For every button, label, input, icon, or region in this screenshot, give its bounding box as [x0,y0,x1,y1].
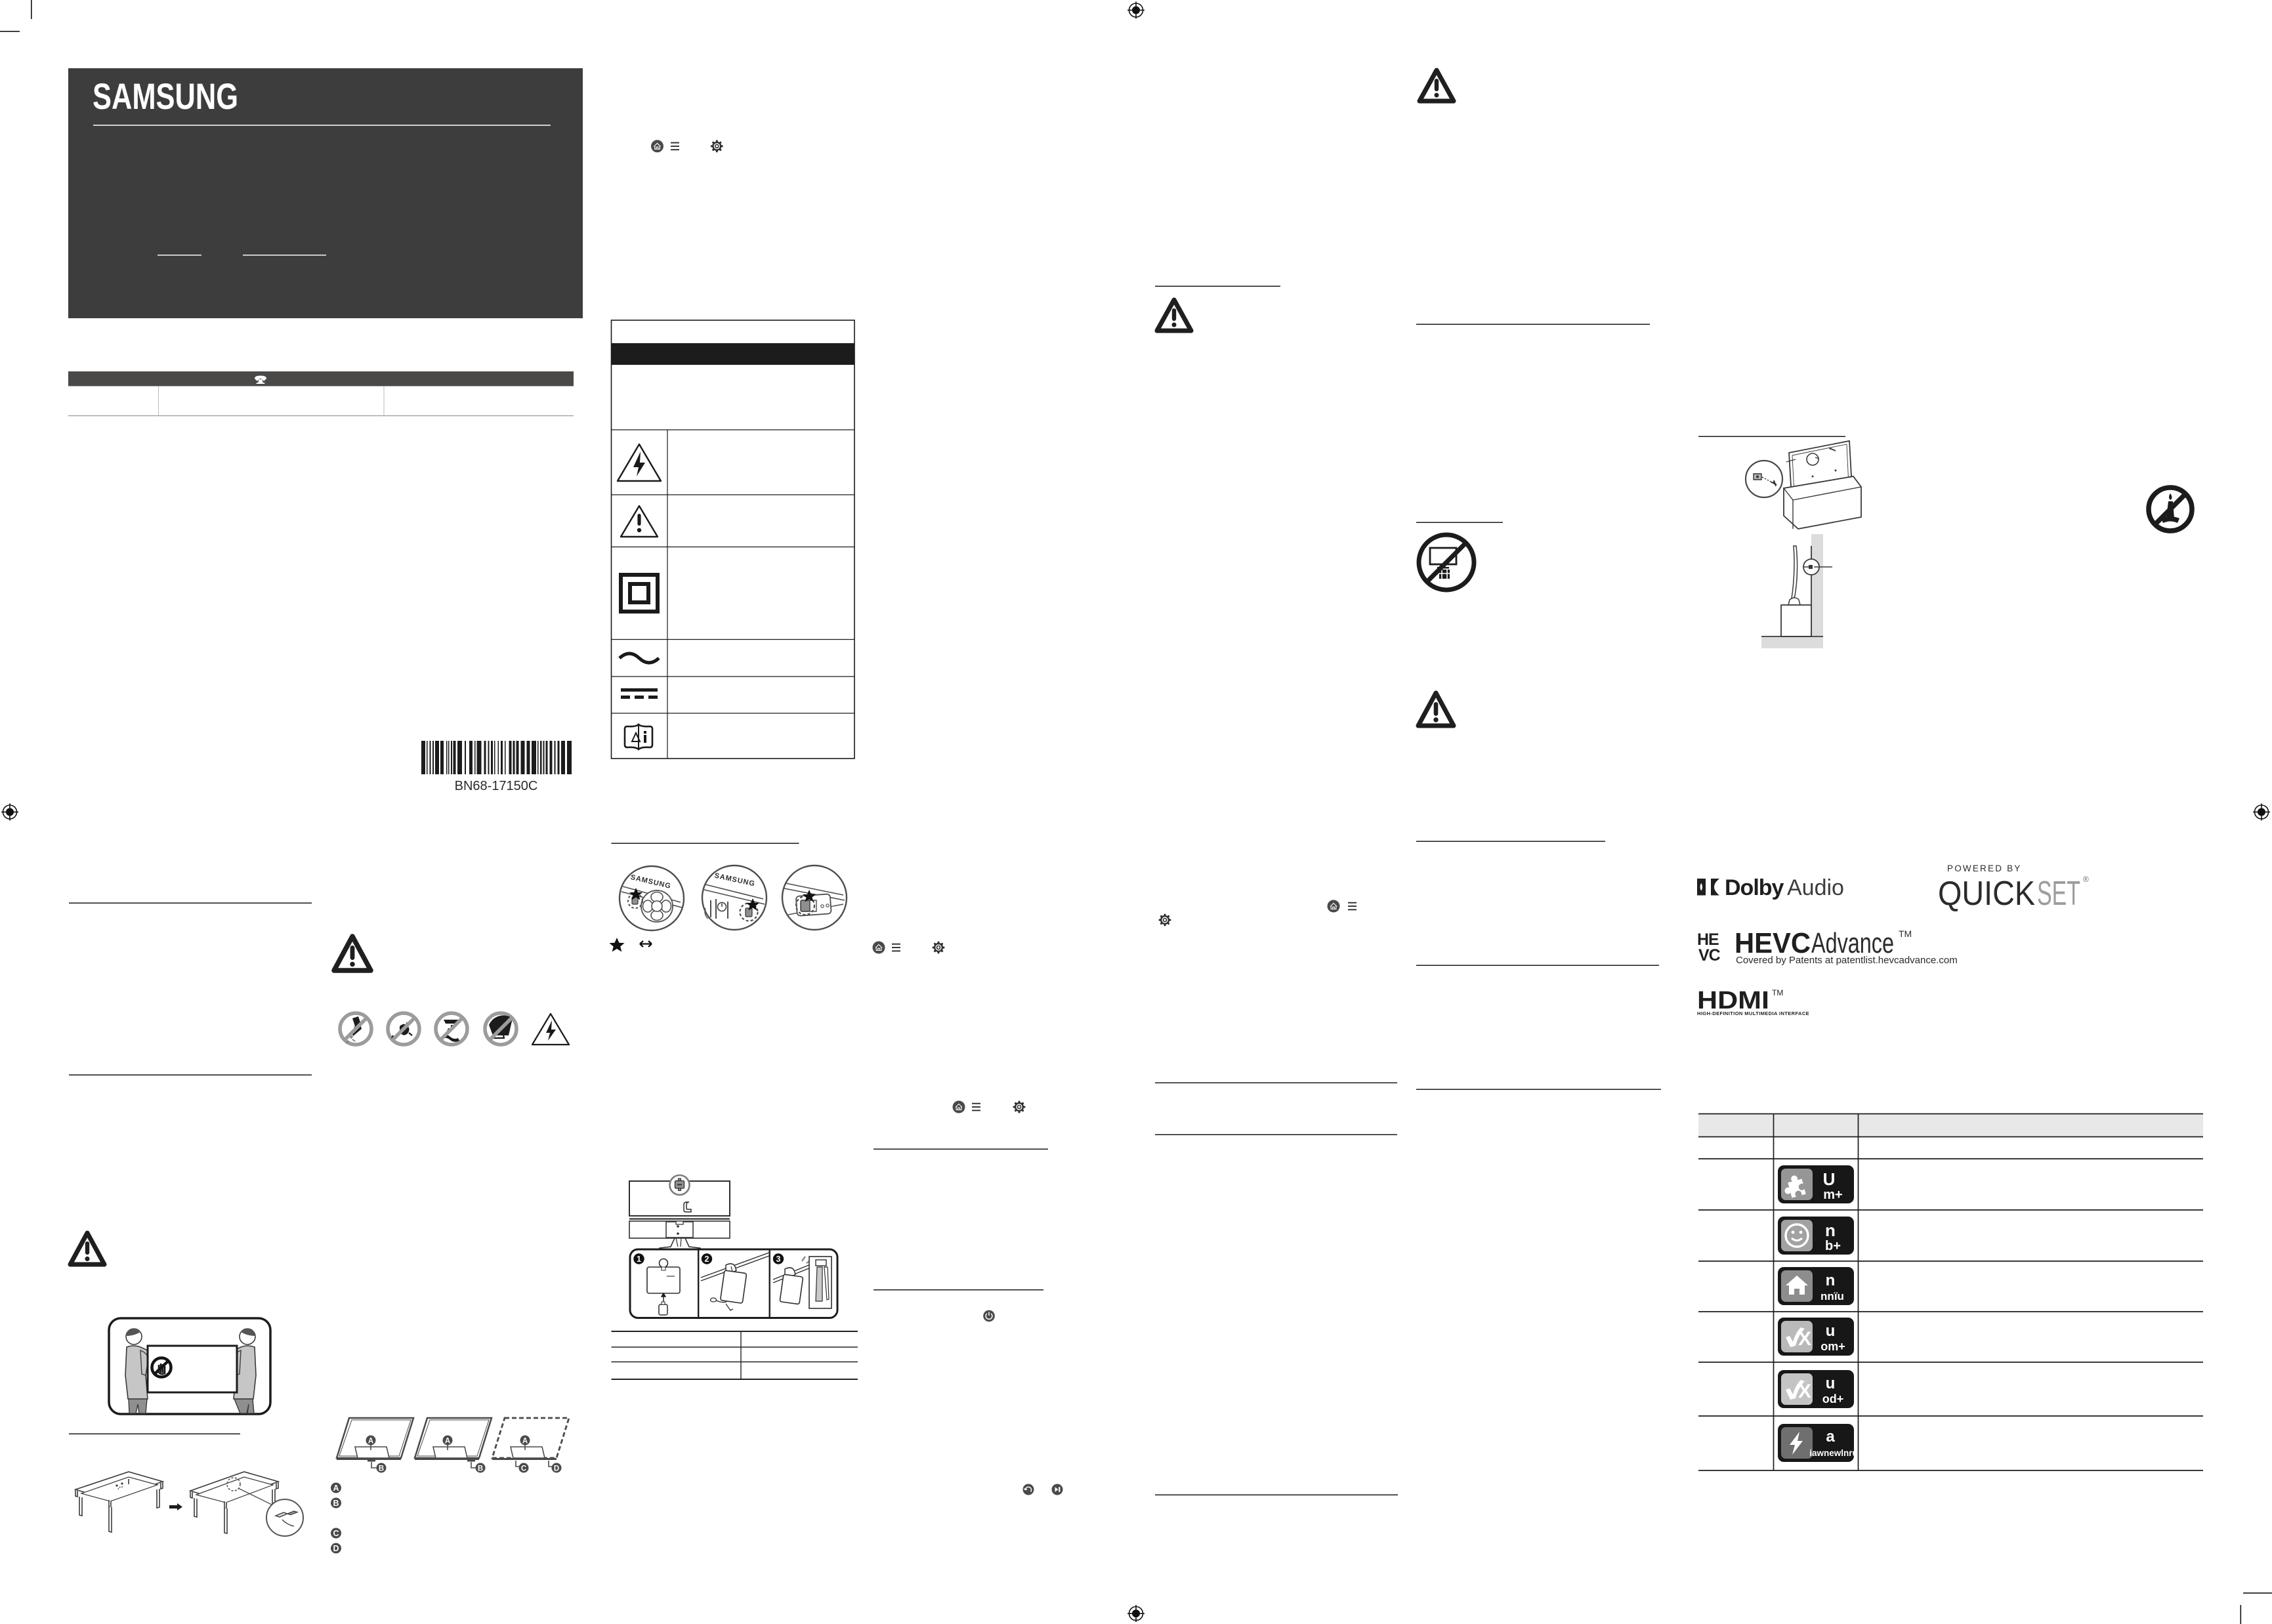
svg-text:a: a [1826,1428,1835,1446]
svg-text:A: A [368,1438,373,1446]
svg-text:X: X [1798,1328,1811,1350]
svg-text:B: B [478,1465,483,1473]
svg-text:D: D [333,1544,339,1553]
svg-text:TM: TM [1899,928,1912,939]
svg-text:nnïu: nnïu [1820,1290,1844,1302]
svg-text:®: ® [2083,875,2089,884]
svg-text:SET: SET [2037,875,2080,913]
svg-text:B: B [379,1465,384,1473]
svg-text:b+: b+ [1825,1239,1841,1253]
svg-text:3: 3 [776,1255,781,1264]
svg-text:2: 2 [705,1255,709,1264]
svg-text:u: u [1826,1375,1836,1392]
svg-text:X: X [1798,1381,1811,1402]
svg-text:od+: od+ [1822,1392,1844,1405]
svg-text:SAMSUNG: SAMSUNG [93,75,238,117]
svg-text:D: D [554,1465,559,1473]
svg-text:u: u [1826,1322,1836,1340]
svg-text:iawnewlnru: iawnewlnru [1809,1448,1858,1458]
svg-text:m+: m+ [1823,1188,1842,1202]
svg-text:HIGH-DEFINITION MULTIMEDIA INT: HIGH-DEFINITION MULTIMEDIA INTERFACE [1697,1010,1809,1016]
svg-text:n: n [1826,1272,1836,1289]
svg-text:BN68-17150C: BN68-17150C [455,779,538,793]
svg-text:B: B [333,1499,339,1508]
svg-text:A: A [333,1484,339,1493]
svg-text:POWERED BY: POWERED BY [1947,864,2022,873]
svg-text:U: U [1823,1169,1836,1189]
svg-text:Covered by Patents at patentli: Covered by Patents at patentlist.hevcadv… [1736,955,1958,966]
svg-text:om+: om+ [1820,1340,1845,1353]
svg-text:QUICK: QUICK [1938,875,2035,913]
svg-text:A: A [522,1438,528,1446]
svg-text:TM: TM [1772,988,1783,997]
svg-text:A: A [445,1438,450,1446]
svg-text:VC: VC [1698,946,1721,965]
svg-text:n: n [1825,1220,1836,1240]
svg-text:Audio: Audio [1787,875,1844,900]
svg-text:C: C [521,1465,526,1473]
svg-text:C: C [333,1529,339,1538]
svg-text:Dolby: Dolby [1725,875,1784,900]
svg-text:1: 1 [637,1255,641,1264]
